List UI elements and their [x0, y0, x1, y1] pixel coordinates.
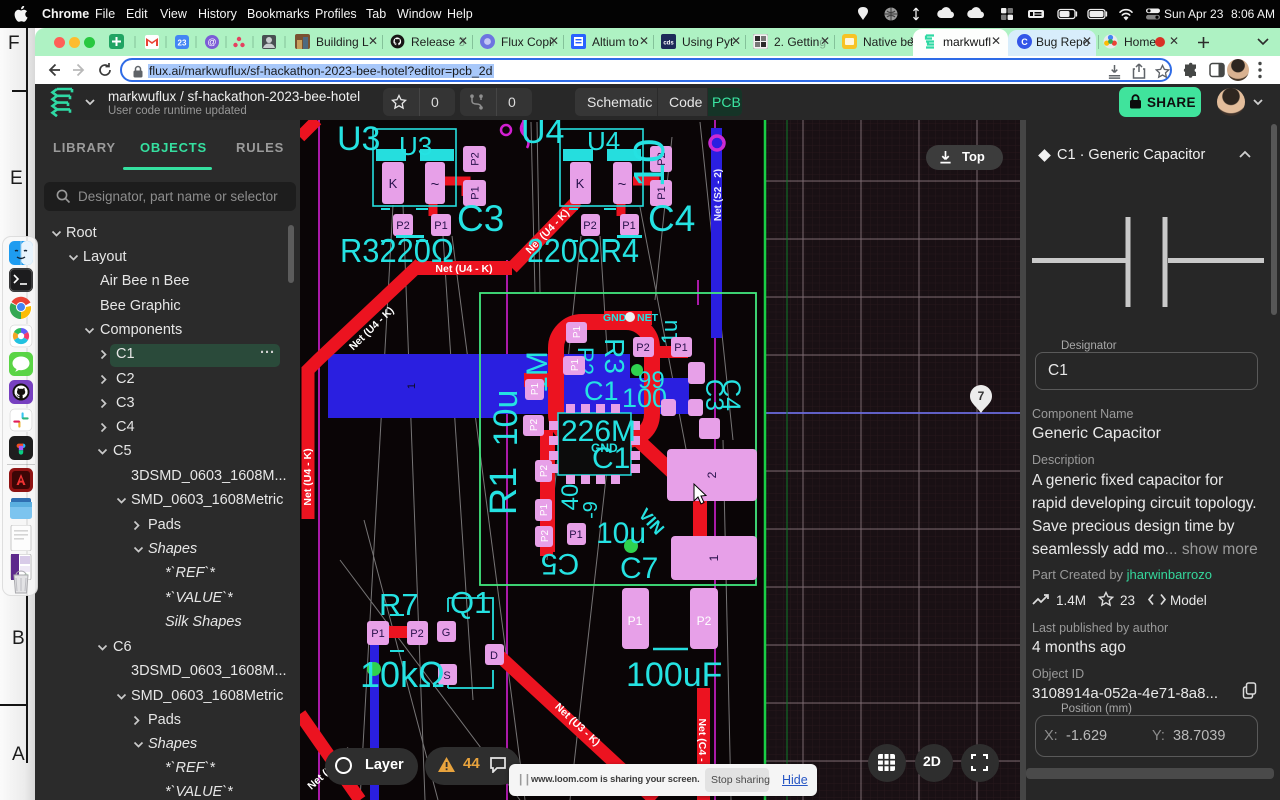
svg-text:23: 23 [178, 39, 187, 48]
svg-text:P2: P2 [410, 628, 423, 640]
svg-text:@: @ [207, 37, 216, 47]
svg-text:P2: P2 [583, 220, 596, 232]
svg-text:C1: C1 [592, 442, 630, 475]
svg-text:C3: C3 [457, 198, 504, 239]
svg-text:C: C [1021, 37, 1028, 47]
svg-text:K: K [389, 176, 398, 191]
svg-text:10u: 10u [487, 390, 525, 447]
svg-text:C5: C5 [541, 547, 579, 580]
svg-text:P2: P2 [697, 614, 712, 628]
svg-text:G: G [442, 627, 451, 639]
svg-text:2: 2 [705, 471, 719, 478]
svg-text:R1: R1 [483, 467, 525, 516]
svg-text:NET: NET [637, 312, 659, 324]
svg-text:1: 1 [707, 554, 721, 561]
svg-text:Net (S2 - 2): Net (S2 - 2) [713, 169, 724, 221]
svg-text:P1: P1 [572, 325, 583, 338]
svg-text:P2: P2 [529, 418, 540, 431]
svg-text:C4: C4 [648, 198, 695, 239]
svg-text:P2: P2 [636, 342, 649, 354]
svg-text:P2: P2 [470, 152, 482, 165]
svg-text:U4: U4 [521, 120, 564, 151]
svg-text:P1: P1 [530, 382, 541, 395]
svg-text:R3: R3 [599, 338, 630, 374]
svg-text:GND: GND [603, 312, 627, 324]
svg-text:C7: C7 [620, 552, 658, 585]
svg-text:D: D [490, 650, 498, 662]
svg-text:Q1: Q1 [450, 585, 491, 620]
svg-text:P1: P1 [628, 614, 643, 628]
svg-text:P1: P1 [371, 628, 384, 640]
svg-text:P1: P1 [674, 342, 687, 354]
svg-text:10u: 10u [596, 517, 646, 550]
svg-text:K: K [576, 176, 585, 191]
svg-text:U3: U3 [399, 131, 432, 161]
svg-text:R7: R7 [379, 587, 419, 622]
svg-text:P2: P2 [539, 464, 550, 477]
svg-text:C4: C4 [717, 379, 745, 411]
svg-text:cds: cds [663, 41, 674, 47]
svg-text:10kΩ: 10kΩ [360, 654, 445, 695]
svg-text:U4: U4 [587, 126, 620, 156]
svg-text:P2: P2 [540, 529, 551, 542]
svg-text:100uF: 100uF [626, 656, 722, 694]
svg-text:P1: P1 [539, 503, 550, 516]
svg-text:C1: C1 [584, 376, 619, 406]
svg-text:~: ~ [431, 176, 440, 193]
svg-text:1: 1 [406, 383, 418, 389]
svg-text:P1: P1 [622, 220, 635, 232]
svg-text:P1: P1 [569, 529, 582, 541]
svg-text:10: 10 [625, 139, 674, 188]
svg-text:P1: P1 [434, 220, 447, 232]
svg-text:P1: P1 [570, 358, 581, 371]
svg-text:P2: P2 [396, 220, 409, 232]
svg-text:Net (U4 - K): Net (U4 - K) [302, 448, 314, 505]
svg-text:7: 7 [978, 389, 985, 403]
svg-text:U3: U3 [337, 120, 380, 158]
